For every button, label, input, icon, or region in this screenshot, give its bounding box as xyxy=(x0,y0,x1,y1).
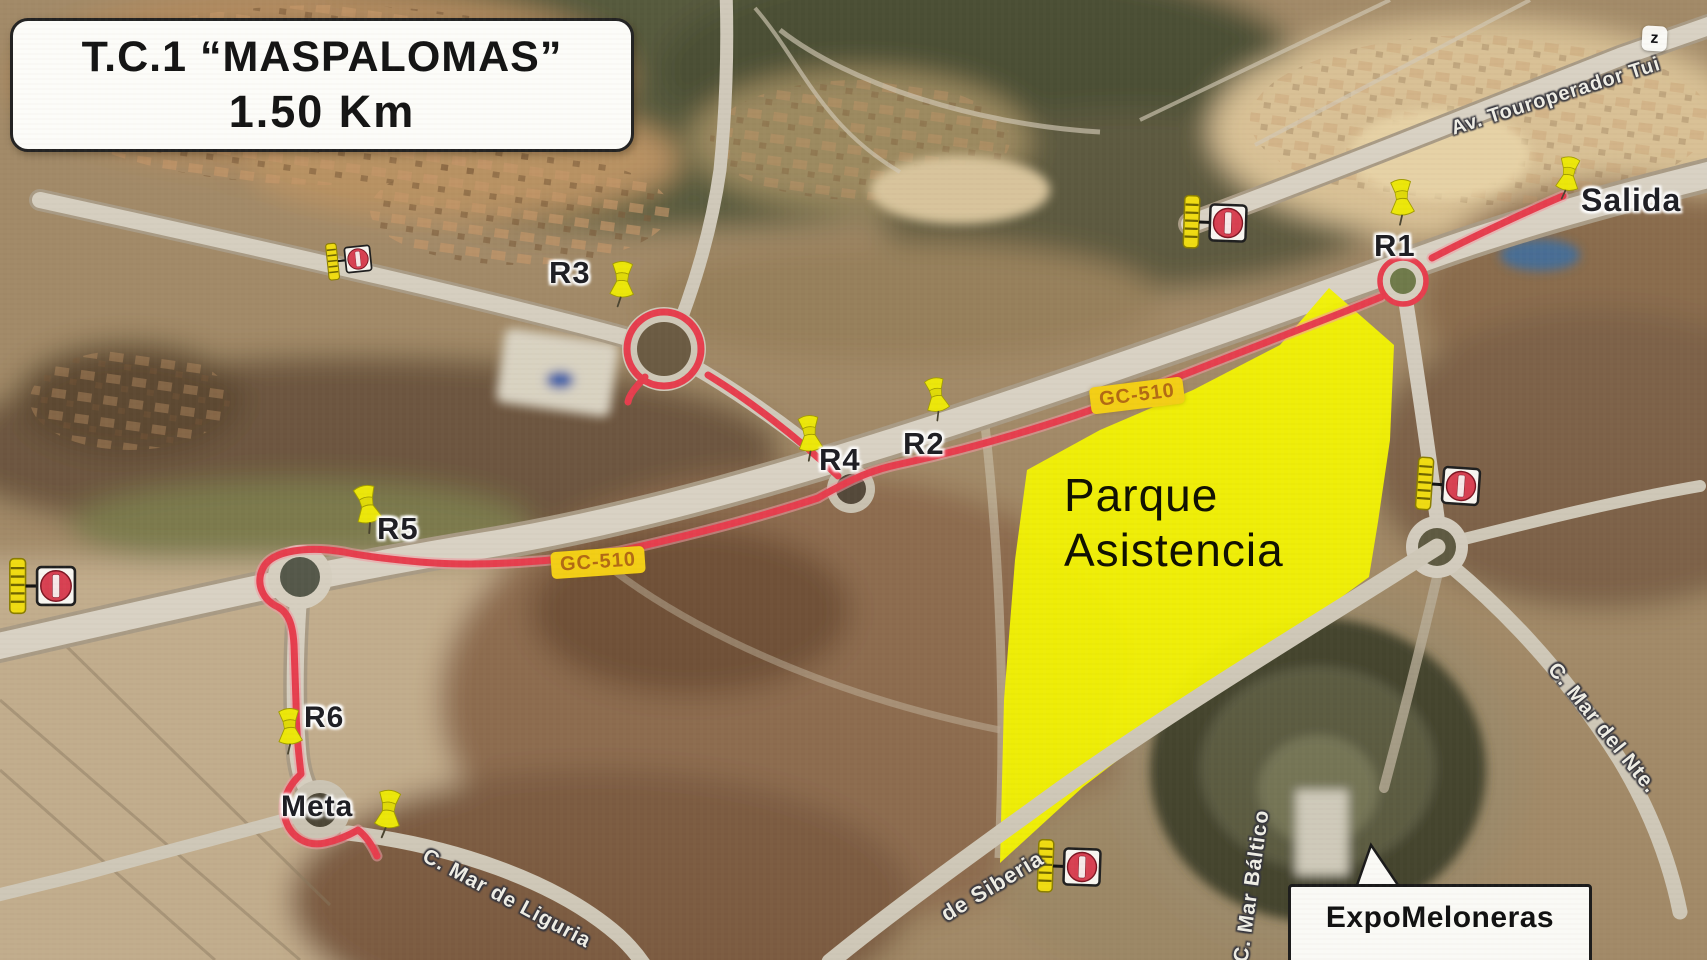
parque-line2: Asistencia xyxy=(1064,523,1284,578)
no-entry-sign-icon xyxy=(10,559,75,614)
parque-line1: Parque xyxy=(1064,468,1284,523)
compass-chip-icon: z xyxy=(1641,25,1667,51)
stage-distance: 1.50 Km xyxy=(229,86,416,138)
stage-title: T.C.1 “MASPALOMAS” xyxy=(82,33,563,82)
expo-meloneras-callout: ExpoMeloneras xyxy=(1288,884,1592,960)
parque-asistencia-label: Parque Asistencia xyxy=(1064,468,1284,578)
map-canvas: T.C.1 “MASPALOMAS” 1.50 Km Salida R1 R2 … xyxy=(0,0,1707,960)
title-card: T.C.1 “MASPALOMAS” 1.50 Km xyxy=(10,18,634,152)
expo-meloneras-label: ExpoMeloneras xyxy=(1326,901,1554,935)
compass-letter: z xyxy=(1650,29,1659,47)
